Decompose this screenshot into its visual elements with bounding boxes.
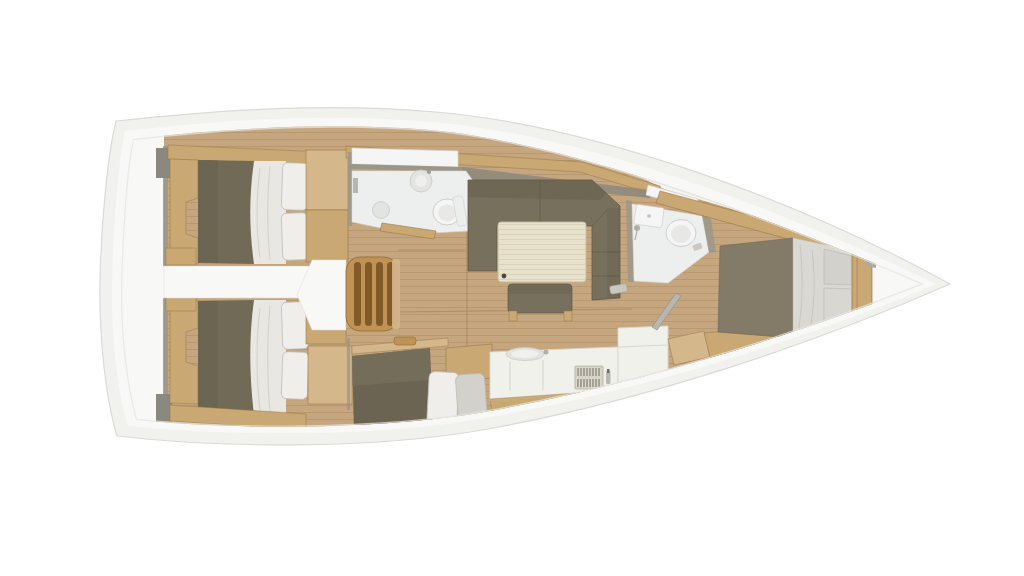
berth-blanket-shade xyxy=(198,160,218,263)
berth-blanket-shade xyxy=(198,301,218,416)
table-fitting xyxy=(502,274,507,279)
galley-faucet xyxy=(544,350,549,355)
aft-head xyxy=(348,148,473,239)
vberth-blanket xyxy=(718,238,793,338)
wardrobe xyxy=(308,346,352,404)
galley-sink-bowl xyxy=(512,350,539,358)
wardrobe xyxy=(306,210,348,262)
bench-leg xyxy=(564,311,572,321)
washbasin-bowl xyxy=(415,175,427,187)
pillow xyxy=(281,352,309,400)
sofa-backrest-shade xyxy=(468,180,606,200)
shower-fixture xyxy=(353,178,358,193)
walkway xyxy=(164,266,314,298)
pillow xyxy=(281,163,309,211)
saloon-table-grain xyxy=(499,223,585,281)
toilet-seat xyxy=(671,225,691,243)
ladder-top-step xyxy=(392,259,400,329)
yacht-floor-plan-canvas xyxy=(0,0,1024,576)
berth-handle xyxy=(394,337,416,345)
sink-small xyxy=(373,202,390,219)
bench-leg xyxy=(509,311,517,321)
walkway-tab xyxy=(166,248,196,265)
shower-head xyxy=(634,225,640,231)
toilet-seat xyxy=(438,205,456,222)
faucet xyxy=(427,170,431,174)
sofa-chaise-shade xyxy=(607,208,620,298)
pillow xyxy=(281,213,309,261)
wardrobe xyxy=(306,150,348,210)
stern-corner-block xyxy=(156,394,172,422)
berth-wall xyxy=(347,338,350,410)
yacht-floor-plan xyxy=(0,0,1024,576)
deck-hatch xyxy=(352,148,458,167)
head-wall xyxy=(348,152,352,226)
shower-drain xyxy=(647,214,651,218)
bench-seat-shade xyxy=(508,284,572,294)
bottle-cap xyxy=(607,369,610,373)
